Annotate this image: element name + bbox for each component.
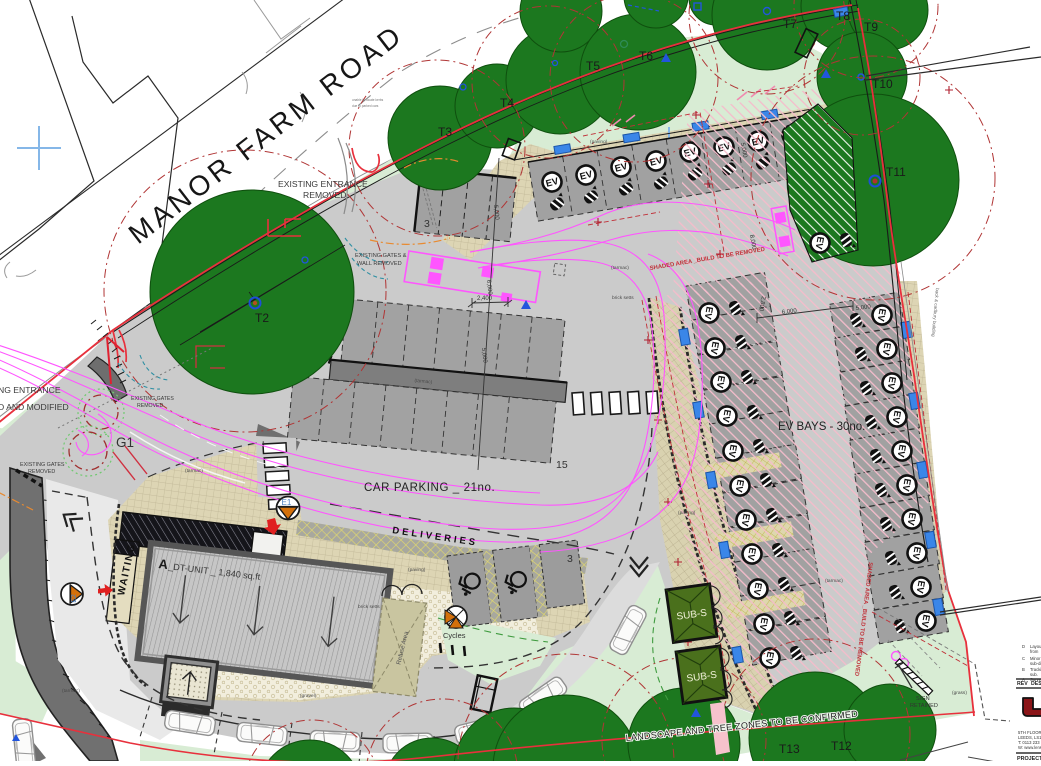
svg-text:PROJECT: PROJECT [1017,756,1041,761]
svg-text:T13: T13 [779,742,800,756]
svg-text:(tarmac): (tarmac) [611,265,629,271]
svg-text:G1: G1 [116,435,134,450]
svg-text:(paving): (paving) [590,139,608,145]
svg-text:T12: T12 [831,739,852,753]
svg-text:T3: T3 [438,125,452,139]
svg-text:Cycles: Cycles [443,631,466,640]
svg-text:due to parked cars: due to parked cars [352,104,379,108]
svg-text:T4: T4 [500,96,514,110]
svg-text:W: www.lens: W: www.lens [1018,745,1041,750]
svg-text:T7: T7 [783,17,797,31]
svg-text:E2: E2 [71,594,78,603]
svg-text:T2: T2 [255,311,269,325]
svg-text:WALL REMOVED: WALL REMOVED [357,261,402,267]
svg-text:REMOVED: REMOVED [28,469,55,475]
svg-text:15: 15 [556,459,568,471]
svg-text:(grass): (grass) [952,690,967,696]
svg-text:T11: T11 [886,165,906,179]
svg-text:(paving): (paving) [678,510,696,516]
svg-text:T9: T9 [864,20,878,34]
svg-text:(tarmac): (tarmac) [62,688,80,694]
svg-text:3: 3 [567,553,573,565]
svg-text:SIGN: SIGN [916,696,930,702]
svg-text:NG ENTRANCE: NG ENTRANCE [0,385,61,395]
svg-text:(tarmac): (tarmac) [185,468,203,474]
svg-text:brick setts: brick setts [612,295,634,301]
svg-text:(gravel): (gravel) [300,693,317,699]
svg-text:sub-div: sub-div [1030,661,1041,666]
svg-text:3: 3 [424,218,430,230]
svg-text:from: from [1030,649,1039,654]
svg-text:CAR PARKING _ 21no.: CAR PARKING _ 21no. [364,482,495,494]
svg-text:REMOVED: REMOVED [303,190,346,200]
svg-text:brick setts: brick setts [358,604,380,610]
svg-text:D: D [1022,644,1025,649]
svg-text:DESC: DESC [1031,681,1041,687]
svg-text:T8: T8 [836,9,850,23]
svg-text:EXISTING GATES: EXISTING GATES [131,396,174,402]
svg-text:C: C [1022,656,1025,661]
svg-text:T5: T5 [586,59,600,73]
svg-text:(tarmac): (tarmac) [825,578,843,584]
svg-text:unable to locate kerbs: unable to locate kerbs [352,98,384,102]
svg-text:EXISTING GATES &: EXISTING GATES & [355,253,407,259]
svg-text:EXISTING ENTRANCE: EXISTING ENTRANCE [278,179,368,189]
svg-text:2,400: 2,400 [477,296,493,302]
svg-text:REMOVED: REMOVED [137,403,163,409]
svg-text:EV BAYS - 30no.: EV BAYS - 30no. [778,421,865,433]
svg-text:B: B [1022,667,1025,672]
svg-text:REV: REV [1017,681,1028,687]
svg-text:E1: E1 [282,498,292,507]
svg-text:EXISTING GATES: EXISTING GATES [20,462,65,468]
svg-text:T6: T6 [639,49,653,63]
svg-text:D AND MODIFIED: D AND MODIFIED [0,402,69,412]
svg-text:(paving): (paving) [408,567,426,573]
svg-text:RETAINED: RETAINED [910,703,938,709]
